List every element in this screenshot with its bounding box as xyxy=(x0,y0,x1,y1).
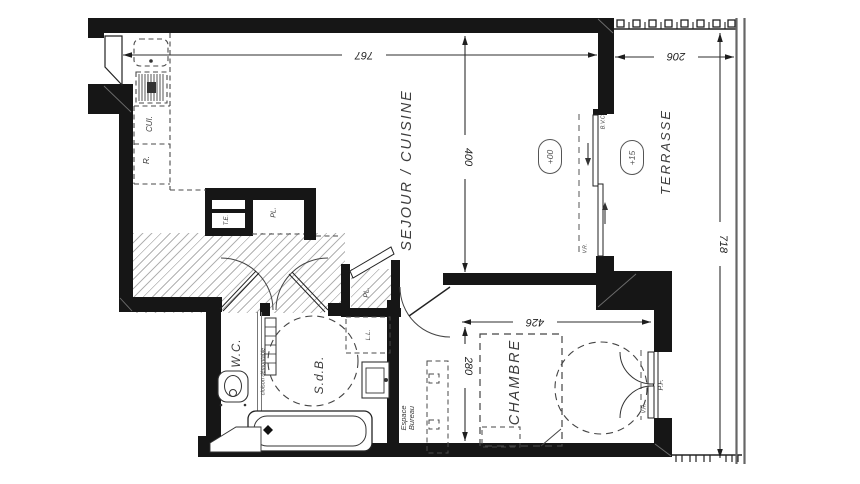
label-cui: CUI. xyxy=(144,107,156,141)
level-badge-sejour: +00 xyxy=(538,139,562,174)
dim-facade-height: 718 xyxy=(716,222,730,266)
railing-bottom xyxy=(672,455,742,462)
bed-fold-line xyxy=(541,429,561,446)
washbasin-tap xyxy=(384,378,388,382)
floor-plan: SEJOUR / CUISINE TERRASSE CHAMBRE S.d.B.… xyxy=(0,0,860,484)
room-label-chambre: CHAMBRE xyxy=(507,322,525,442)
room-label-sdb: S.d.B. xyxy=(313,345,327,405)
room-label-sejour-cuisine: SEJOUR / CUISINE xyxy=(399,90,417,250)
pf-leaf-top xyxy=(648,352,654,384)
desk xyxy=(427,361,448,453)
sink-drain xyxy=(149,59,153,63)
bureau-line2: Bureau xyxy=(408,405,416,430)
dim-sejour-depth: 400 xyxy=(461,135,475,179)
room-label-wc: W.C. xyxy=(230,330,244,376)
dim-chambre-width: 426 xyxy=(513,315,557,329)
hall-closet-door xyxy=(350,247,394,278)
room-label-bureau: Espace Bureau xyxy=(398,393,418,443)
label-cloison: cloison démontable xyxy=(260,327,269,417)
chambre-door-arc xyxy=(400,287,450,337)
chambre-turning-circle xyxy=(555,342,647,434)
sdb-door-leaf xyxy=(292,272,328,310)
label-vr-chambre: V.R. xyxy=(641,398,650,420)
wc-door-leaf-2 xyxy=(223,273,259,311)
sliding-panel-1 xyxy=(593,115,598,186)
toilet-fix-right xyxy=(244,404,247,407)
entry-door-leaf xyxy=(105,36,122,85)
dimension-arrows xyxy=(123,33,734,458)
plan-linework xyxy=(0,0,860,484)
label-vr-sejour: V.R. xyxy=(582,238,591,260)
dimension-lines xyxy=(123,33,734,458)
label-bvc: B.V.C. xyxy=(600,108,609,136)
sliding-panel-2 xyxy=(598,184,603,256)
stove-oven xyxy=(147,82,156,93)
wc-window-notch xyxy=(210,427,261,452)
pf-swing-top xyxy=(620,352,652,384)
label-pl-entry: PL. xyxy=(269,200,280,226)
wc-door-arc xyxy=(221,258,273,310)
kitchen-counter xyxy=(134,33,341,236)
railing-top xyxy=(614,20,736,29)
label-te: T.E. xyxy=(222,207,232,233)
slide-arrow-down xyxy=(585,158,591,166)
dim-terrasse-width: 206 xyxy=(654,49,698,63)
label-ll: L.L. xyxy=(364,322,374,348)
dim-chambre-depth: 280 xyxy=(461,344,475,388)
chambre-door-leaf xyxy=(409,287,450,316)
label-fridge: R. xyxy=(141,145,153,175)
level-badge-terrasse: +15 xyxy=(620,140,644,175)
level-terrasse-value: +15 xyxy=(627,150,637,164)
dim-sejour-width: 767 xyxy=(342,48,386,62)
room-label-terrasse: TERRASSE xyxy=(658,97,674,207)
sdb-door-leaf-2 xyxy=(289,274,325,312)
level-sejour-value: +00 xyxy=(545,149,555,163)
facade-lines xyxy=(737,18,745,464)
label-pl-hall: PL. xyxy=(362,280,373,306)
label-pf: P.F. xyxy=(657,372,667,398)
toilet-fix-left xyxy=(220,404,223,407)
wc-door-leaf xyxy=(220,271,256,309)
